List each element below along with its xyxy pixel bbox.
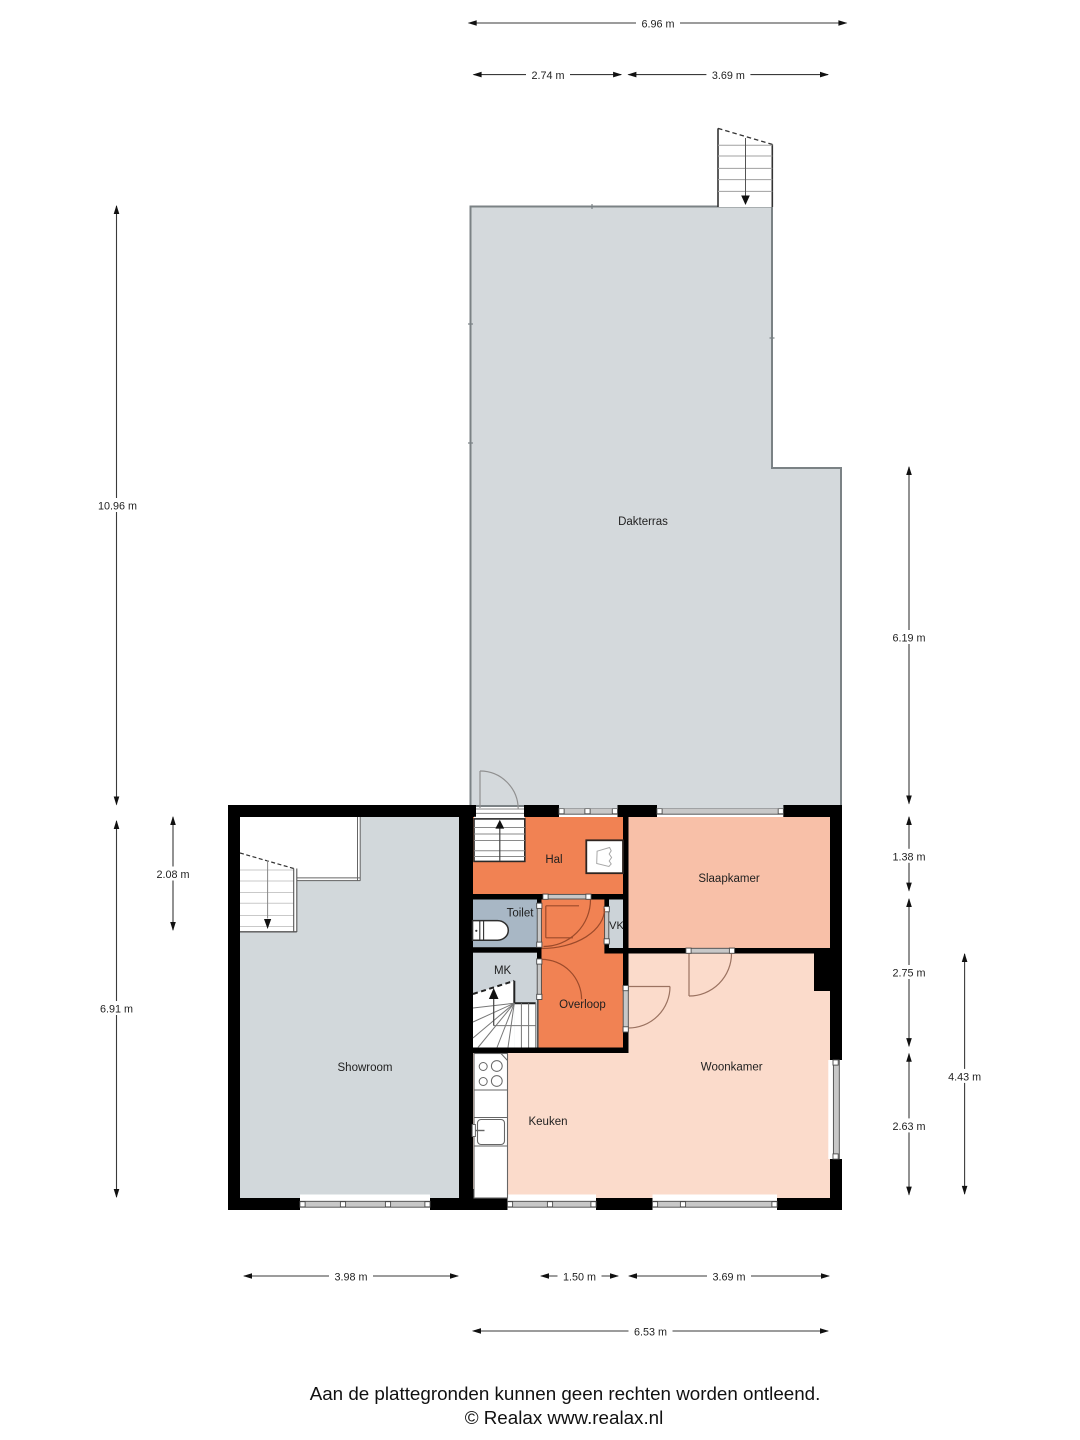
svg-text:Toilet: Toilet — [507, 908, 535, 920]
svg-text:© Realax www.realax.nl: © Realax www.realax.nl — [465, 1407, 664, 1428]
svg-text:2.74 m: 2.74 m — [531, 70, 564, 82]
svg-text:VK: VK — [609, 920, 624, 932]
svg-text:Keuken: Keuken — [528, 1116, 567, 1128]
svg-text:3.69 m: 3.69 m — [712, 70, 745, 82]
svg-text:Showroom: Showroom — [338, 1062, 393, 1074]
svg-text:Overloop: Overloop — [559, 999, 606, 1011]
svg-text:Slaapkamer: Slaapkamer — [698, 873, 760, 885]
svg-text:Woonkamer: Woonkamer — [701, 1062, 763, 1074]
svg-text:1.50 m: 1.50 m — [563, 1272, 596, 1284]
svg-text:Aan de plattegronden kunnen ge: Aan de plattegronden kunnen geen rechten… — [310, 1383, 821, 1404]
svg-text:Hal: Hal — [545, 854, 562, 866]
svg-text:1.38 m: 1.38 m — [892, 851, 925, 863]
svg-text:6.19 m: 6.19 m — [892, 633, 925, 645]
svg-text:3.69 m: 3.69 m — [712, 1272, 745, 1284]
svg-text:MK: MK — [494, 965, 512, 977]
svg-text:2.75 m: 2.75 m — [892, 968, 925, 980]
svg-text:6.91 m: 6.91 m — [100, 1004, 133, 1016]
svg-text:Dakterras: Dakterras — [618, 516, 668, 528]
svg-text:3.98 m: 3.98 m — [334, 1272, 367, 1284]
svg-text:2.08 m: 2.08 m — [156, 869, 189, 881]
svg-text:10.96 m: 10.96 m — [98, 501, 137, 513]
svg-text:6.53 m: 6.53 m — [634, 1327, 667, 1339]
svg-text:2.63 m: 2.63 m — [892, 1121, 925, 1133]
svg-text:4.43 m: 4.43 m — [948, 1071, 981, 1083]
svg-text:6.96 m: 6.96 m — [641, 19, 674, 31]
